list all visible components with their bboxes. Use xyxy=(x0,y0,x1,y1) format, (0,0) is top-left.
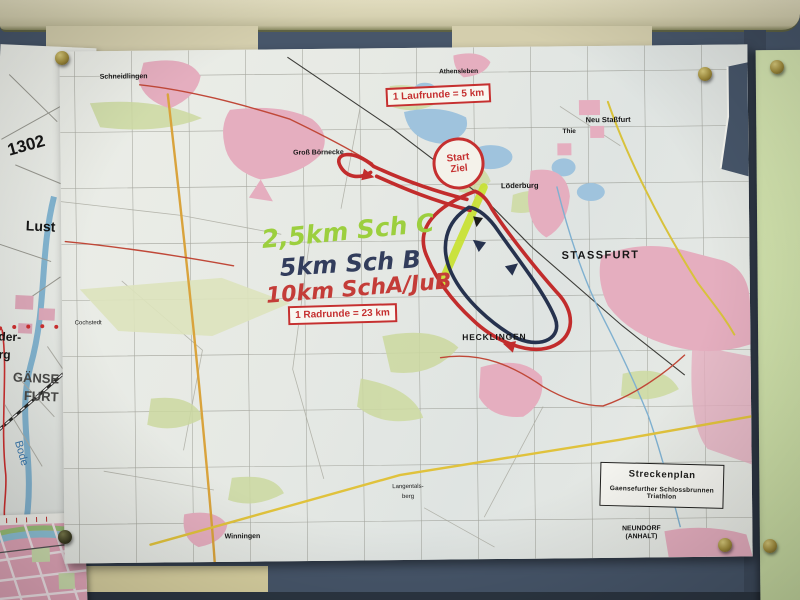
legend-title: Streckenplan xyxy=(603,468,721,482)
board-bottom-strip xyxy=(0,592,800,600)
pushpin-icon xyxy=(770,60,784,74)
pushpin-icon xyxy=(698,67,712,81)
map-label-berg: berg xyxy=(402,494,414,500)
map-label-langentals-: Langentals- xyxy=(392,484,423,490)
map-label-athensleben: Athensleben xyxy=(439,69,478,76)
pushpin-icon xyxy=(763,539,777,553)
map-label-thie: Thie xyxy=(562,129,575,136)
course-map-poster: SchneidlingenAthenslebenGroß BörneckeLöd… xyxy=(59,44,752,563)
pushpin-icon xyxy=(55,51,69,65)
green-paper xyxy=(756,50,800,600)
map-label-neu-staßfurt: Neu Staßfurt xyxy=(586,116,631,124)
map-label-cochstedt: Cochstedt xyxy=(75,320,102,326)
left-map-label-der-: der- xyxy=(0,330,21,343)
ziel-label: Ziel xyxy=(450,163,468,176)
radrunde-box: 1 Radrunde = 23 km xyxy=(288,303,397,325)
left-map-label-urg: urg xyxy=(0,348,11,361)
pushpin-icon xyxy=(718,538,732,552)
legend-box: Streckenplan Gaensefurther Schlossbrunne… xyxy=(599,462,724,509)
pushpin-icon xyxy=(58,530,72,544)
map-label-winningen: Winningen xyxy=(225,533,261,540)
map-label-groß-börnecke: Groß Börnecke xyxy=(293,149,344,157)
map-label--anhalt-: (ANHALT) xyxy=(625,534,657,541)
left-map-label-furt: FURT xyxy=(24,389,59,404)
map-label-schneidlingen: Schneidlingen xyxy=(100,73,148,81)
map-label-hecklingen: HECKLINGEN xyxy=(462,332,526,341)
photo-bulletin-board: 1302Lustder-urgGÄNSEFURTBode xyxy=(0,0,800,600)
left-map-label-lust: Lust xyxy=(26,218,56,233)
map-label-löderburg: Löderburg xyxy=(501,182,539,190)
map-label-stassfurt: STASSFURT xyxy=(562,250,640,262)
left-map-label-gänse: GÄNSE xyxy=(13,370,60,385)
